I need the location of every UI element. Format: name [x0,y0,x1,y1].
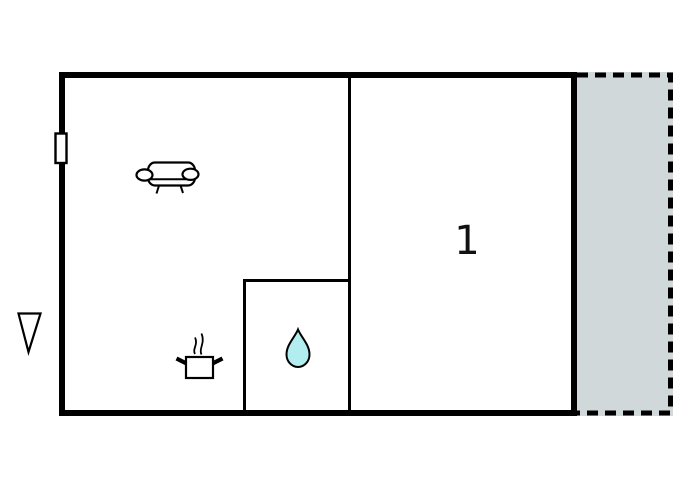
floor-plan-drawing: 1 [0,0,700,500]
floor-plan: 1 [0,0,700,500]
north-arrow-icon [19,314,41,353]
terrace-fill [577,72,673,416]
window-icon [56,134,67,164]
outer-walls [62,75,574,413]
room-1-label: 1 [454,218,479,264]
terrace-area [577,72,673,416]
